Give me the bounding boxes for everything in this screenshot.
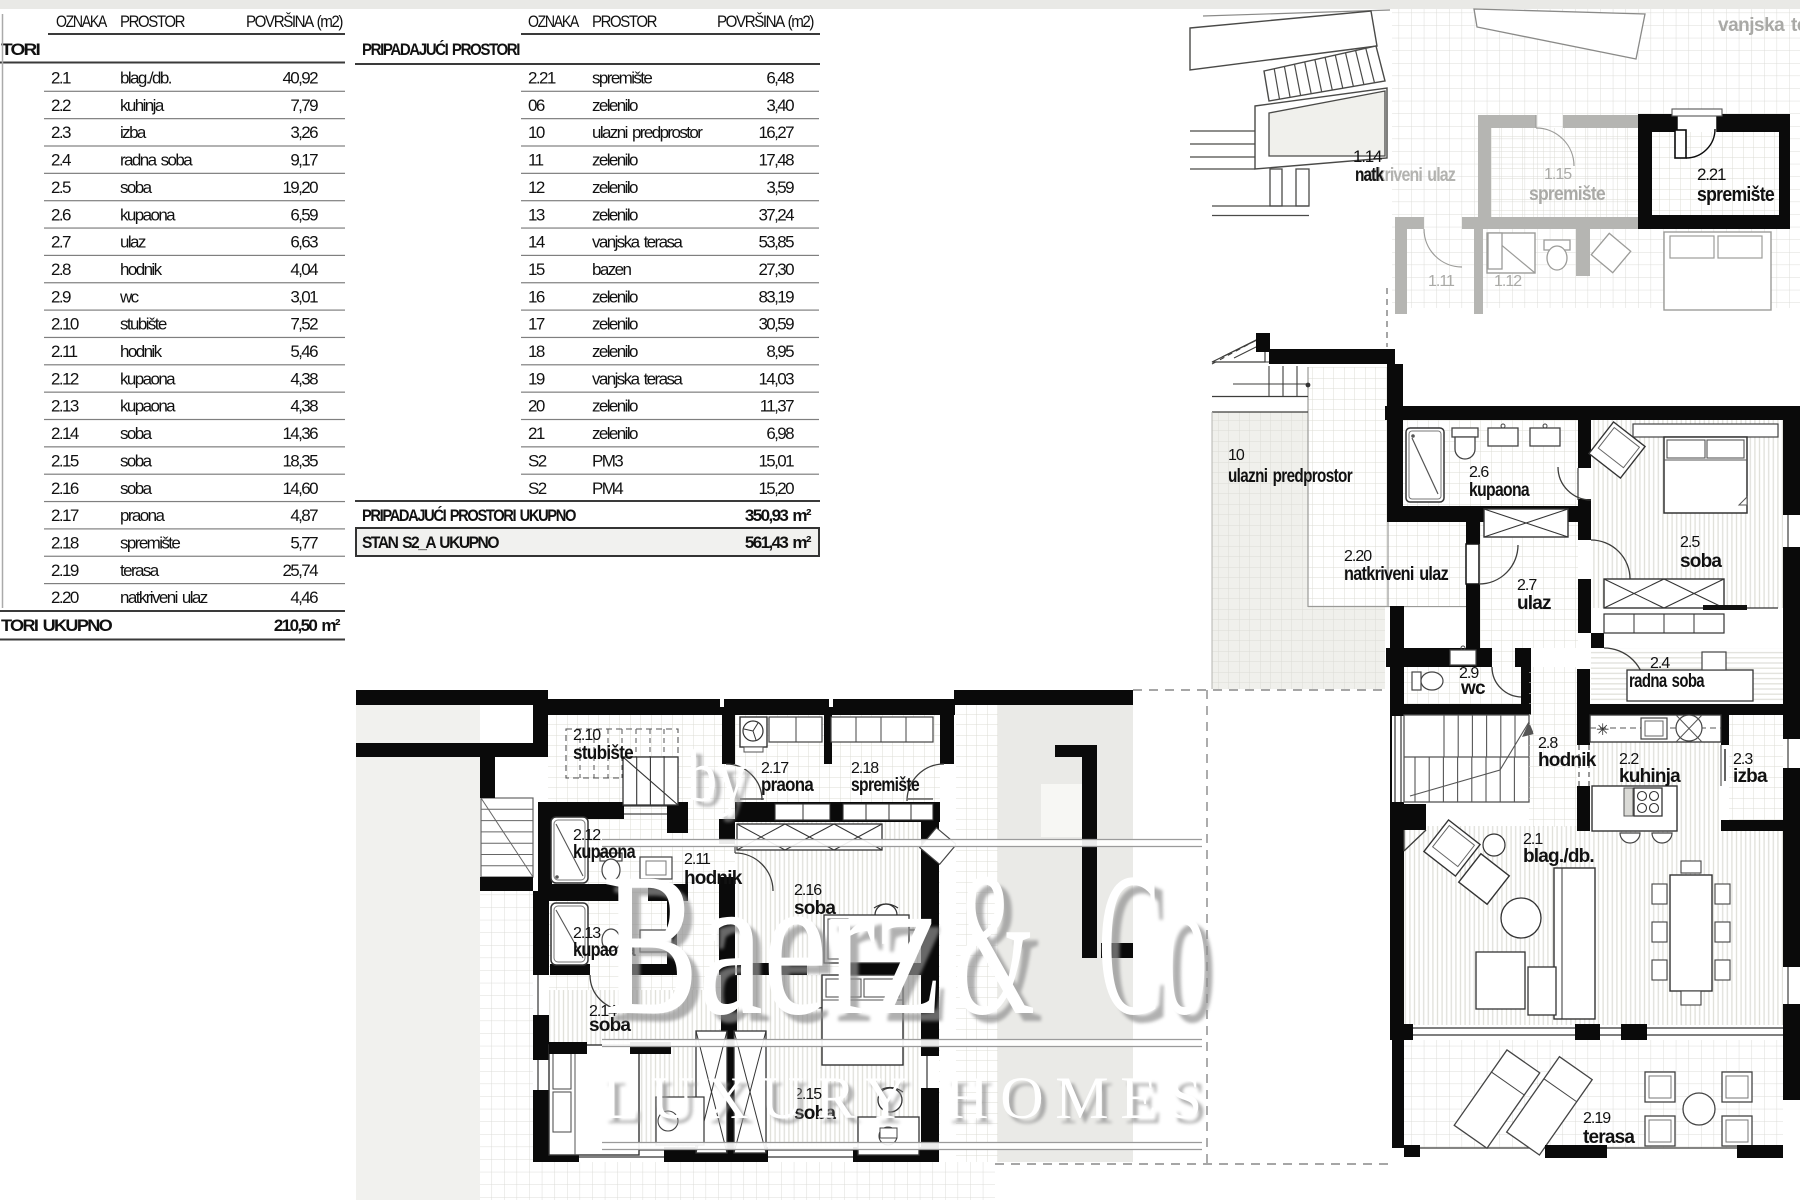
svg-text:2.19: 2.19: [51, 561, 79, 580]
svg-text:5,46: 5,46: [290, 342, 318, 361]
svg-text:PROSTOR: PROSTOR: [592, 12, 657, 31]
svg-text:izba: izba: [120, 123, 147, 142]
svg-text:2.5: 2.5: [1680, 534, 1700, 551]
svg-text:PROSTOR: PROSTOR: [120, 12, 185, 31]
svg-text:17: 17: [528, 315, 545, 334]
svg-text:hodnik: hodnik: [1538, 750, 1597, 771]
svg-text:15: 15: [528, 260, 545, 279]
svg-text:18,35: 18,35: [282, 451, 318, 470]
svg-text:terasa: terasa: [1583, 1127, 1635, 1148]
svg-text:PRIPADAJUĆI PROSTORI: PRIPADAJUĆI PROSTORI: [362, 40, 520, 59]
svg-text:zelenilo: zelenilo: [592, 151, 638, 170]
svg-text:2.4: 2.4: [1650, 655, 1670, 672]
svg-text:9,17: 9,17: [290, 151, 318, 170]
svg-text:ulazni predprostor: ulazni predprostor: [1228, 466, 1353, 487]
svg-text:3,01: 3,01: [290, 287, 318, 306]
svg-text:15,20: 15,20: [758, 479, 794, 498]
svg-text:1.11: 1.11: [1428, 273, 1455, 290]
svg-text:6,59: 6,59: [290, 205, 318, 224]
svg-text:17,48: 17,48: [758, 151, 794, 170]
svg-text:20: 20: [528, 397, 545, 416]
svg-text:blag./db.: blag./db.: [1523, 846, 1594, 867]
svg-text:praona: praona: [761, 775, 814, 796]
svg-text:5,77: 5,77: [290, 533, 318, 552]
svg-text:PM4: PM4: [592, 479, 623, 498]
svg-text:TORI: TORI: [1, 40, 40, 59]
svg-text:terasa: terasa: [120, 561, 160, 580]
svg-text:OZNAKA: OZNAKA: [528, 12, 580, 31]
svg-text:4,38: 4,38: [290, 397, 318, 416]
svg-text:14,03: 14,03: [758, 369, 794, 388]
svg-text:STAN S2_A UKUPNO: STAN S2_A UKUPNO: [362, 533, 499, 552]
svg-text:30,59: 30,59: [758, 315, 794, 334]
svg-text:zelenilo: zelenilo: [592, 315, 638, 334]
svg-text:2.10: 2.10: [51, 315, 79, 334]
svg-text:6,48: 6,48: [766, 69, 794, 88]
svg-text:4,38: 4,38: [290, 369, 318, 388]
svg-text:2.4: 2.4: [51, 151, 71, 170]
svg-text:2.7: 2.7: [51, 233, 71, 252]
svg-text:spremište: spremište: [120, 533, 180, 552]
svg-text:350,93 m²: 350,93 m²: [745, 506, 812, 525]
svg-text:spremište: spremište: [1529, 184, 1605, 205]
svg-text:2.20: 2.20: [1344, 548, 1372, 565]
svg-text:4,46: 4,46: [290, 588, 318, 607]
svg-text:1.15: 1.15: [1544, 166, 1572, 183]
svg-text:19: 19: [528, 369, 545, 388]
svg-text:2.2: 2.2: [51, 96, 71, 115]
svg-text:10: 10: [528, 123, 545, 142]
svg-text:kupaona: kupaona: [120, 205, 176, 224]
svg-text:kupaona: kupaona: [120, 369, 176, 388]
svg-text:✳: ✳: [1596, 722, 1609, 739]
svg-text:natk: natk: [1355, 165, 1384, 186]
svg-text:zelenilo: zelenilo: [592, 424, 638, 443]
svg-text:hodnik: hodnik: [120, 342, 163, 361]
svg-text:2.8: 2.8: [51, 260, 71, 279]
svg-text:18: 18: [528, 342, 545, 361]
svg-text:TORI UKUPNO: TORI UKUPNO: [1, 616, 112, 635]
svg-text:83,19: 83,19: [758, 287, 794, 306]
svg-text:2.6: 2.6: [1469, 464, 1489, 481]
svg-text:stubište: stubište: [120, 315, 167, 334]
svg-text:11,37: 11,37: [760, 397, 794, 416]
svg-text:7,79: 7,79: [290, 96, 318, 115]
svg-text:zelenilo: zelenilo: [592, 397, 638, 416]
svg-text:25,74: 25,74: [282, 561, 318, 580]
svg-text:14: 14: [528, 233, 545, 252]
svg-text:2.18: 2.18: [51, 533, 79, 552]
svg-text:37,24: 37,24: [758, 205, 794, 224]
svg-text:1.14: 1.14: [1353, 147, 1382, 166]
svg-text:zelenilo: zelenilo: [592, 96, 638, 115]
svg-text:3,59: 3,59: [766, 178, 794, 197]
svg-text:14,36: 14,36: [282, 424, 318, 443]
svg-text:3,40: 3,40: [766, 96, 794, 115]
svg-text:kuhinja: kuhinja: [1619, 766, 1681, 787]
svg-text:PM3: PM3: [592, 451, 623, 470]
svg-text:spremište: spremište: [1697, 184, 1775, 206]
svg-text:by: by: [687, 736, 747, 818]
svg-text:2.5: 2.5: [51, 178, 71, 197]
svg-text:&: &: [953, 831, 1035, 1058]
svg-text:ulaz: ulaz: [1517, 593, 1551, 614]
svg-text:spremište: spremište: [592, 69, 652, 88]
svg-text:wc: wc: [1460, 678, 1486, 699]
svg-text:2.11: 2.11: [51, 342, 78, 361]
svg-text:soba: soba: [120, 451, 153, 470]
svg-text:4,87: 4,87: [290, 506, 318, 525]
svg-text:6,63: 6,63: [290, 233, 318, 252]
svg-text:natkriveni ulaz: natkriveni ulaz: [1344, 564, 1448, 585]
svg-text:40,92: 40,92: [282, 69, 318, 88]
svg-text:soba: soba: [120, 178, 153, 197]
svg-text:2.14: 2.14: [51, 424, 79, 443]
svg-text:19,20: 19,20: [282, 178, 318, 197]
svg-text:soba: soba: [120, 424, 153, 443]
svg-text:2.19: 2.19: [1583, 1110, 1611, 1127]
svg-text:15,01: 15,01: [758, 451, 794, 470]
svg-text:vanjska terasa: vanjska terasa: [592, 369, 683, 388]
svg-text:6,98: 6,98: [766, 424, 794, 443]
svg-text:zelenilo: zelenilo: [592, 178, 638, 197]
svg-text:bazen: bazen: [592, 260, 631, 279]
svg-text:53,85: 53,85: [758, 233, 794, 252]
svg-text:stubište: stubište: [573, 743, 633, 764]
svg-text:11: 11: [528, 151, 544, 170]
svg-text:2.16: 2.16: [51, 479, 79, 498]
svg-text:natkriveni ulaz: natkriveni ulaz: [120, 588, 208, 607]
svg-text:2.20: 2.20: [51, 588, 79, 607]
svg-text:210,50 m²: 210,50 m²: [274, 616, 341, 635]
svg-text:blag./db.: blag./db.: [120, 69, 172, 88]
svg-text:zelenilo: zelenilo: [592, 287, 638, 306]
svg-text:vanjska tera: vanjska tera: [1718, 15, 1800, 36]
svg-text:Co: Co: [1098, 831, 1208, 1058]
svg-text:izba: izba: [1733, 766, 1768, 787]
svg-text:13: 13: [528, 205, 545, 224]
svg-text:561,43 m²: 561,43 m²: [745, 533, 812, 552]
svg-text:2.7: 2.7: [1517, 577, 1537, 594]
svg-text:2.17: 2.17: [51, 506, 79, 525]
svg-text:2.6: 2.6: [51, 205, 71, 224]
svg-text:kupaona: kupaona: [120, 397, 176, 416]
svg-text:12: 12: [528, 178, 545, 197]
svg-text:1.12: 1.12: [1494, 273, 1522, 290]
svg-text:2.15: 2.15: [51, 451, 79, 470]
svg-text:Baerz: Baerz: [602, 831, 940, 1058]
svg-text:2.13: 2.13: [51, 397, 79, 416]
svg-text:06: 06: [528, 96, 545, 115]
svg-text:16: 16: [528, 287, 545, 306]
svg-text:16,27: 16,27: [758, 123, 794, 142]
svg-text:POVRŠINA (m2): POVRŠINA (m2): [717, 12, 814, 31]
svg-text:2.9: 2.9: [51, 287, 71, 306]
svg-text:spremište: spremište: [851, 775, 919, 796]
svg-text:ulaz: ulaz: [120, 233, 146, 252]
svg-text:21: 21: [528, 424, 545, 443]
svg-text:14,60: 14,60: [282, 479, 318, 498]
svg-text:PRIPADAJUĆI PROSTORI UKUPNO: PRIPADAJUĆI PROSTORI UKUPNO: [362, 506, 576, 525]
svg-text:radna soba: radna soba: [1629, 671, 1705, 692]
svg-text:ulazni predprostor: ulazni predprostor: [592, 123, 703, 142]
svg-text:vanjska terasa: vanjska terasa: [592, 233, 683, 252]
svg-text:OZNAKA: OZNAKA: [56, 12, 108, 31]
svg-text:hodnik: hodnik: [120, 260, 163, 279]
svg-text:4,04: 4,04: [290, 260, 318, 279]
svg-text:2.1: 2.1: [51, 69, 71, 88]
svg-text:3,26: 3,26: [290, 123, 318, 142]
svg-text:27,30: 27,30: [758, 260, 794, 279]
svg-text:kuhinja: kuhinja: [120, 96, 165, 115]
svg-text:praona: praona: [120, 506, 165, 525]
svg-text:zelenilo: zelenilo: [592, 205, 638, 224]
svg-text:2.12: 2.12: [51, 369, 79, 388]
svg-text:radna soba: radna soba: [120, 151, 193, 170]
svg-text:soba: soba: [1680, 551, 1722, 572]
svg-text:2.10: 2.10: [573, 727, 601, 744]
svg-text:2.3: 2.3: [51, 123, 71, 142]
svg-text:POVRŠINA (m2): POVRŠINA (m2): [246, 12, 343, 31]
svg-text:S2: S2: [528, 479, 547, 498]
svg-text:S2: S2: [528, 451, 547, 470]
svg-text:8,95: 8,95: [766, 342, 794, 361]
svg-text:2.21: 2.21: [1697, 165, 1726, 184]
svg-text:wc: wc: [119, 287, 140, 306]
svg-text:kupaona: kupaona: [1469, 480, 1530, 501]
svg-text:7,52: 7,52: [290, 315, 318, 334]
svg-text:10: 10: [1228, 447, 1245, 464]
svg-text:2.21: 2.21: [528, 69, 556, 88]
svg-text:zelenilo: zelenilo: [592, 342, 638, 361]
svg-text:soba: soba: [120, 479, 153, 498]
